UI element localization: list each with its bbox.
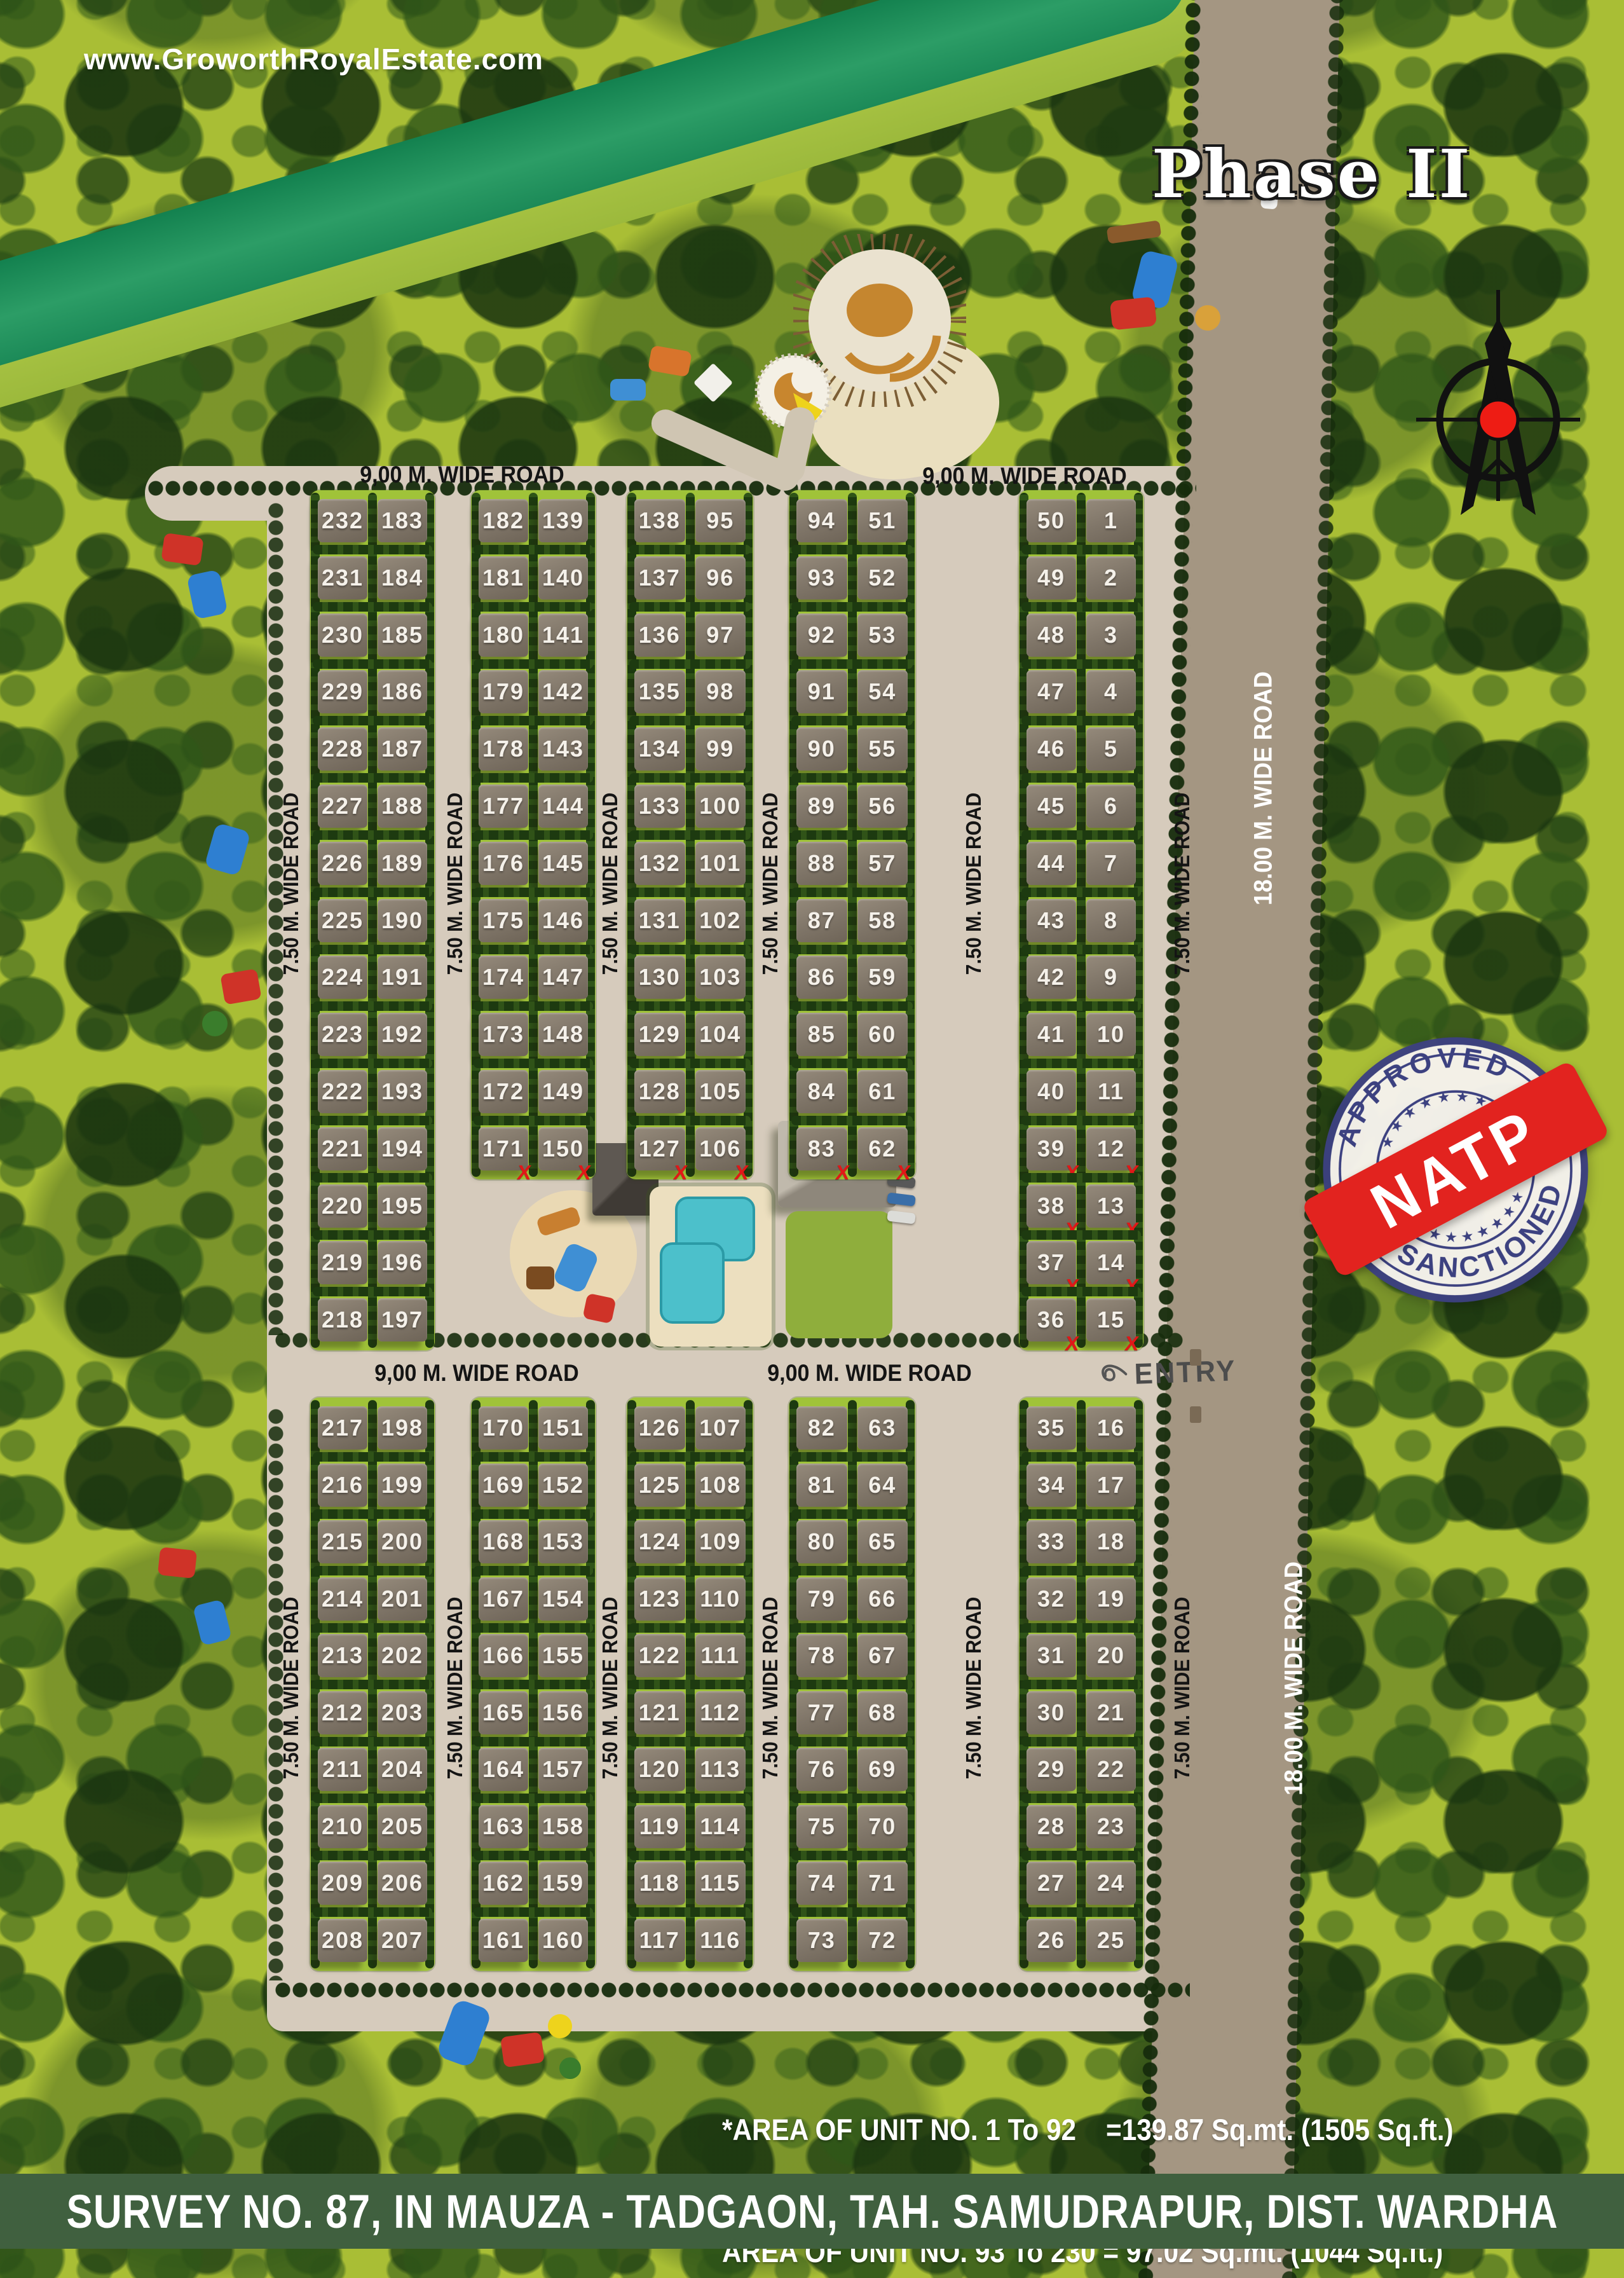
plot-number: 130 xyxy=(639,964,681,991)
road-label-7m: 7.50 M. WIDE ROAD xyxy=(443,1597,467,1780)
plot-163: 163 xyxy=(479,1805,528,1848)
plot-number: 42 xyxy=(1037,964,1065,991)
plot-number: 196 xyxy=(381,1249,423,1276)
plot-223: 223 xyxy=(318,1013,367,1056)
plot-33: 33 xyxy=(1027,1520,1076,1563)
hedge xyxy=(1021,773,1141,783)
plot-number: 160 xyxy=(542,1927,584,1954)
plot-7: 7 xyxy=(1086,842,1136,885)
plot-105: 105 xyxy=(695,1070,746,1113)
plot-number: 35 xyxy=(1037,1415,1065,1441)
plot-110: 110 xyxy=(695,1577,746,1621)
plot-177: 177 xyxy=(479,785,528,828)
plot-number: 180 xyxy=(482,622,524,648)
plot-72: 72 xyxy=(857,1919,908,1962)
hedge xyxy=(1021,1623,1141,1633)
plot-199: 199 xyxy=(378,1464,427,1507)
plot-49: 49 xyxy=(1027,556,1076,600)
plot-78: 78 xyxy=(796,1634,847,1677)
plot-number: 209 xyxy=(322,1870,364,1897)
plot-31: 31 xyxy=(1027,1634,1076,1677)
plot-number: 203 xyxy=(381,1699,423,1726)
plot-39: 39X xyxy=(1027,1127,1076,1170)
plot-number: 31 xyxy=(1037,1642,1065,1669)
plot-number: 193 xyxy=(381,1078,423,1105)
plot-86: 86 xyxy=(796,956,847,999)
plot-63: 63 xyxy=(857,1406,908,1450)
plot-1: 1 xyxy=(1086,499,1136,542)
plot-number: 44 xyxy=(1037,850,1065,877)
plot-88: 88 xyxy=(796,842,847,885)
plot-38: 38X xyxy=(1027,1184,1076,1228)
plot-number: 90 xyxy=(808,736,836,762)
plot-number: 120 xyxy=(639,1756,681,1783)
plot-158: 158 xyxy=(538,1805,588,1848)
plot-17: 17 xyxy=(1086,1464,1136,1507)
plot-90: 90 xyxy=(796,727,847,771)
plot-number: 23 xyxy=(1097,1813,1125,1840)
plot-number: 21 xyxy=(1097,1699,1125,1726)
sold-x-mark: X xyxy=(1063,1332,1081,1355)
plot-number: 88 xyxy=(808,850,836,877)
plot-66: 66 xyxy=(857,1577,908,1621)
plot-number: 24 xyxy=(1097,1870,1125,1897)
plot-54: 54 xyxy=(857,670,908,713)
plot-64: 64 xyxy=(857,1464,908,1507)
sold-x-mark: X xyxy=(895,1161,912,1184)
plot-180: 180 xyxy=(479,614,528,657)
hedge xyxy=(313,945,432,954)
plot-number: 97 xyxy=(706,622,734,648)
plot-194: 194 xyxy=(378,1127,427,1170)
plot-230: 230 xyxy=(318,614,367,657)
plot-number: 155 xyxy=(542,1642,584,1669)
hedge xyxy=(791,545,913,554)
plot-number: 201 xyxy=(381,1586,423,1612)
plot-number: 112 xyxy=(700,1699,740,1726)
plot-number: 38 xyxy=(1037,1193,1065,1219)
plot-number: 220 xyxy=(322,1193,364,1219)
plot-block-U1: 2321832311842301852291862281872271882261… xyxy=(310,490,435,1350)
plot-number: 216 xyxy=(322,1472,364,1499)
hedge xyxy=(791,1851,913,1860)
plot-number: 127 xyxy=(639,1136,681,1162)
plot-30: 30 xyxy=(1027,1691,1076,1734)
plot-number: 4 xyxy=(1104,678,1118,705)
plot-142: 142 xyxy=(538,670,588,713)
plot-170: 170 xyxy=(479,1406,528,1450)
plot-number: 58 xyxy=(868,907,896,934)
plot-number: 49 xyxy=(1037,565,1065,591)
plot-213: 213 xyxy=(318,1634,367,1677)
plot-number: 132 xyxy=(639,850,681,877)
hedge xyxy=(474,1851,593,1860)
plot-25: 25 xyxy=(1086,1919,1136,1962)
plot-number: 16 xyxy=(1097,1415,1125,1441)
plot-number: 126 xyxy=(639,1415,681,1441)
plot-176: 176 xyxy=(479,842,528,885)
plot-79: 79 xyxy=(796,1577,847,1621)
plot-number: 67 xyxy=(868,1642,896,1669)
plot-number: 27 xyxy=(1037,1870,1065,1897)
plot-number: 225 xyxy=(322,907,364,934)
hedge xyxy=(313,1230,432,1240)
plot-number: 47 xyxy=(1037,678,1065,705)
hedge xyxy=(313,602,432,612)
plot-211: 211 xyxy=(318,1748,367,1791)
plot-10: 10 xyxy=(1086,1013,1136,1056)
hedge xyxy=(313,1287,432,1296)
plot-181: 181 xyxy=(479,556,528,600)
hedge xyxy=(313,1680,432,1689)
plot-153: 153 xyxy=(538,1520,588,1563)
plot-number: 13 xyxy=(1097,1193,1125,1219)
plot-228: 228 xyxy=(318,727,367,771)
plot-number: 227 xyxy=(322,793,364,820)
plot-number: 29 xyxy=(1037,1756,1065,1783)
plot-136: 136 xyxy=(634,614,685,657)
plot-150: 150X xyxy=(538,1127,588,1170)
plot-161: 161 xyxy=(479,1919,528,1962)
plot-216: 216 xyxy=(318,1464,367,1507)
hedge xyxy=(791,1566,913,1575)
plot-number: 108 xyxy=(699,1472,741,1499)
plot-144: 144 xyxy=(538,785,588,828)
plot-number: 122 xyxy=(639,1642,681,1669)
plot-number: 104 xyxy=(699,1021,741,1048)
plot-218: 218 xyxy=(318,1298,367,1341)
plot-138: 138 xyxy=(634,499,685,542)
plot-195: 195 xyxy=(378,1184,427,1228)
plot-number: 186 xyxy=(381,678,423,705)
plot-number: 134 xyxy=(639,736,681,762)
plot-number: 14 xyxy=(1097,1249,1125,1276)
entry-gate-pillar xyxy=(1190,1406,1201,1423)
plot-number: 125 xyxy=(639,1472,681,1499)
plot-96: 96 xyxy=(695,556,746,600)
plot-number: 33 xyxy=(1037,1528,1065,1555)
plot-11: 11 xyxy=(1086,1070,1136,1113)
hedge xyxy=(1021,1566,1141,1575)
plot-number: 230 xyxy=(322,622,364,648)
plot-80: 80 xyxy=(796,1520,847,1563)
plot-4: 4 xyxy=(1086,670,1136,713)
plot-number: 26 xyxy=(1037,1927,1065,1954)
plot-block-L4: 8263816480657966786777687669757074717372 xyxy=(789,1397,915,1971)
plot-59: 59 xyxy=(857,956,908,999)
plot-137: 137 xyxy=(634,556,685,600)
plot-block-U5: 5014924834744654564474384294110401139X12… xyxy=(1019,490,1143,1350)
plot-87: 87 xyxy=(796,899,847,942)
plot-45: 45 xyxy=(1027,785,1076,828)
plot-number: 153 xyxy=(542,1528,584,1555)
plot-200: 200 xyxy=(378,1520,427,1563)
plot-47: 47 xyxy=(1027,670,1076,713)
plot-152: 152 xyxy=(538,1464,588,1507)
hedge xyxy=(313,1001,432,1011)
sold-x-mark: X xyxy=(575,1161,592,1184)
plot-number: 178 xyxy=(482,736,524,762)
plot-block-U4: 9451935292539154905589568857875886598560… xyxy=(789,490,915,1179)
plot-65: 65 xyxy=(857,1520,908,1563)
plot-8: 8 xyxy=(1086,899,1136,942)
plot-number: 55 xyxy=(868,736,896,762)
plot-number: 59 xyxy=(868,964,896,991)
plot-28: 28 xyxy=(1027,1805,1076,1848)
plot-135: 135 xyxy=(634,670,685,713)
plot-128: 128 xyxy=(634,1070,685,1113)
plot-71: 71 xyxy=(857,1862,908,1905)
hedge xyxy=(474,1116,593,1125)
plot-157: 157 xyxy=(538,1748,588,1791)
plot-number: 195 xyxy=(381,1193,423,1219)
hedge xyxy=(313,659,432,669)
plot-number: 165 xyxy=(482,1699,524,1726)
plot-109: 109 xyxy=(695,1520,746,1563)
plot-130: 130 xyxy=(634,956,685,999)
plot-104: 104 xyxy=(695,1013,746,1056)
plot-number: 48 xyxy=(1037,622,1065,648)
plot-number: 219 xyxy=(322,1249,364,1276)
plot-number: 164 xyxy=(482,1756,524,1783)
hedge xyxy=(629,1116,751,1125)
plot-number: 61 xyxy=(868,1078,896,1105)
plot-5: 5 xyxy=(1086,727,1136,771)
plot-145: 145 xyxy=(538,842,588,885)
plot-95: 95 xyxy=(695,499,746,542)
road-label-9m: 9,00 M. WIDE ROAD xyxy=(767,1360,972,1387)
plot-number: 65 xyxy=(868,1528,896,1555)
plot-number: 194 xyxy=(381,1136,423,1162)
plot-84: 84 xyxy=(796,1070,847,1113)
hedge xyxy=(313,545,432,554)
hedge xyxy=(474,1001,593,1011)
plot-number: 200 xyxy=(381,1528,423,1555)
plot-number: 98 xyxy=(706,678,734,705)
plot-number: 45 xyxy=(1037,793,1065,820)
plot-41: 41 xyxy=(1027,1013,1076,1056)
hedge xyxy=(1021,1737,1141,1746)
plot-number: 140 xyxy=(542,565,584,591)
plot-number: 72 xyxy=(868,1927,896,1954)
plot-number: 177 xyxy=(482,793,524,820)
plot-9: 9 xyxy=(1086,956,1136,999)
plot-number: 41 xyxy=(1037,1021,1065,1048)
plot-127: 127X xyxy=(634,1127,685,1170)
plot-124: 124 xyxy=(634,1520,685,1563)
plot-159: 159 xyxy=(538,1862,588,1905)
plot-number: 162 xyxy=(482,1870,524,1897)
plot-207: 207 xyxy=(378,1919,427,1962)
plot-202: 202 xyxy=(378,1634,427,1677)
plot-197: 197 xyxy=(378,1298,427,1341)
plot-129: 129 xyxy=(634,1013,685,1056)
plot-number: 92 xyxy=(808,622,836,648)
plot-number: 172 xyxy=(482,1078,524,1105)
plot-number: 148 xyxy=(542,1021,584,1048)
hedge xyxy=(629,1001,751,1011)
plot-164: 164 xyxy=(479,1748,528,1791)
plot-6: 6 xyxy=(1086,785,1136,828)
plot-16: 16 xyxy=(1086,1406,1136,1450)
plot-184: 184 xyxy=(378,556,427,600)
hedge xyxy=(1021,716,1141,725)
plot-number: 182 xyxy=(482,507,524,534)
plot-number: 111 xyxy=(700,1642,740,1669)
plot-149: 149 xyxy=(538,1070,588,1113)
plot-116: 116 xyxy=(695,1919,746,1962)
plot-179: 179 xyxy=(479,670,528,713)
plot-121: 121 xyxy=(634,1691,685,1734)
plot-208: 208 xyxy=(318,1919,367,1962)
plot-number: 152 xyxy=(542,1472,584,1499)
plot-162: 162 xyxy=(479,1862,528,1905)
plot-number: 91 xyxy=(808,678,836,705)
hedge xyxy=(1021,1116,1141,1125)
plot-number: 96 xyxy=(706,565,734,591)
plot-173: 173 xyxy=(479,1013,528,1056)
plot-number: 9 xyxy=(1104,964,1118,991)
road-label-7m: 7.50 M. WIDE ROAD xyxy=(758,1597,782,1780)
hedge xyxy=(474,1509,593,1519)
plot-50: 50 xyxy=(1027,499,1076,542)
hedge xyxy=(629,888,751,897)
road-label-7m: 7.50 M. WIDE ROAD xyxy=(443,793,467,975)
plot-number: 86 xyxy=(808,964,836,991)
plot-number: 74 xyxy=(808,1870,836,1897)
plot-12: 12X xyxy=(1086,1127,1136,1170)
plot-61: 61 xyxy=(857,1070,908,1113)
road-label-9m: 9,00 M. WIDE ROAD xyxy=(360,462,564,488)
plot-201: 201 xyxy=(378,1577,427,1621)
site-url: www.GroworthRoyalEstate.com xyxy=(84,42,543,76)
plot-number: 109 xyxy=(699,1528,741,1555)
plot-number: 214 xyxy=(322,1586,364,1612)
hedge xyxy=(1021,1287,1141,1296)
hedge xyxy=(474,545,593,554)
plot-number: 222 xyxy=(322,1078,364,1105)
plot-number: 204 xyxy=(381,1756,423,1783)
plot-166: 166 xyxy=(479,1634,528,1677)
plot-number: 93 xyxy=(808,565,836,591)
plot-48: 48 xyxy=(1027,614,1076,657)
plot-115: 115 xyxy=(695,1862,746,1905)
plot-number: 6 xyxy=(1104,793,1118,820)
plot-147: 147 xyxy=(538,956,588,999)
plot-100: 100 xyxy=(695,785,746,828)
plot-number: 215 xyxy=(322,1528,364,1555)
plot-number: 207 xyxy=(381,1927,423,1954)
plot-number: 78 xyxy=(808,1642,836,1669)
plot-51: 51 xyxy=(857,499,908,542)
plot-114: 114 xyxy=(695,1805,746,1848)
hedge xyxy=(474,1566,593,1575)
plot-number: 52 xyxy=(868,565,896,591)
hedge xyxy=(474,659,593,669)
hedge xyxy=(1021,545,1141,554)
plot-number: 150 xyxy=(542,1136,584,1162)
hedge xyxy=(791,1509,913,1519)
plot-75: 75 xyxy=(796,1805,847,1848)
plot-99: 99 xyxy=(695,727,746,771)
plot-15: 15X xyxy=(1086,1298,1136,1341)
plot-number: 57 xyxy=(868,850,896,877)
hedge xyxy=(791,1059,913,1068)
entry-gate-pillar xyxy=(1190,1349,1201,1366)
plot-225: 225 xyxy=(318,899,367,942)
plot-number: 53 xyxy=(868,622,896,648)
hedge xyxy=(1021,1452,1141,1462)
plot-number: 8 xyxy=(1104,907,1118,934)
road-label-7m: 7.50 M. WIDE ROAD xyxy=(962,1597,986,1780)
plot-154: 154 xyxy=(538,1577,588,1621)
plot-227: 227 xyxy=(318,785,367,828)
plot-number: 138 xyxy=(639,507,681,534)
hedge xyxy=(474,716,593,725)
hedge xyxy=(629,1737,751,1746)
plot-block-L3: 1261071251081241091231101221111211121201… xyxy=(627,1397,753,1971)
plot-19: 19 xyxy=(1086,1577,1136,1621)
plot-number: 224 xyxy=(322,964,364,991)
hedge xyxy=(791,1794,913,1803)
plot-204: 204 xyxy=(378,1748,427,1791)
hedge xyxy=(313,1737,432,1746)
plot-29: 29 xyxy=(1027,1748,1076,1791)
plot-number: 102 xyxy=(699,907,741,934)
hedge xyxy=(313,1623,432,1633)
plot-number: 3 xyxy=(1104,622,1118,648)
hedge xyxy=(1021,1509,1141,1519)
hedge xyxy=(629,602,751,612)
plot-174: 174 xyxy=(479,956,528,999)
plot-192: 192 xyxy=(378,1013,427,1056)
sold-x-mark: X xyxy=(515,1161,533,1184)
plot-number: 141 xyxy=(542,622,584,648)
plot-178: 178 xyxy=(479,727,528,771)
plot-214: 214 xyxy=(318,1577,367,1621)
plot-number: 56 xyxy=(868,793,896,820)
hedge xyxy=(629,773,751,783)
plot-number: 40 xyxy=(1037,1078,1065,1105)
plot-222: 222 xyxy=(318,1070,367,1113)
plot-number: 79 xyxy=(808,1586,836,1612)
plot-98: 98 xyxy=(695,670,746,713)
plot-number: 217 xyxy=(322,1415,364,1441)
hedge xyxy=(791,888,913,897)
road-label-9m: 9,00 M. WIDE ROAD xyxy=(374,1360,579,1387)
plot-35: 35 xyxy=(1027,1406,1076,1450)
plot-number: 154 xyxy=(542,1586,584,1612)
plot-58: 58 xyxy=(857,899,908,942)
plot-number: 70 xyxy=(868,1813,896,1840)
plot-number: 151 xyxy=(542,1415,584,1441)
plot-number: 99 xyxy=(706,736,734,762)
plot-number: 71 xyxy=(868,1870,896,1897)
plot-125: 125 xyxy=(634,1464,685,1507)
hedge xyxy=(791,1623,913,1633)
plot-number: 51 xyxy=(868,507,896,534)
hedge xyxy=(791,602,913,612)
plot-number: 118 xyxy=(639,1870,680,1897)
plot-229: 229 xyxy=(318,670,367,713)
plot-23: 23 xyxy=(1086,1805,1136,1848)
plot-number: 161 xyxy=(482,1927,524,1954)
plot-number: 185 xyxy=(381,622,423,648)
plot-140: 140 xyxy=(538,556,588,600)
plot-number: 197 xyxy=(381,1307,423,1333)
hedge xyxy=(791,1907,913,1917)
plot-68: 68 xyxy=(857,1691,908,1734)
